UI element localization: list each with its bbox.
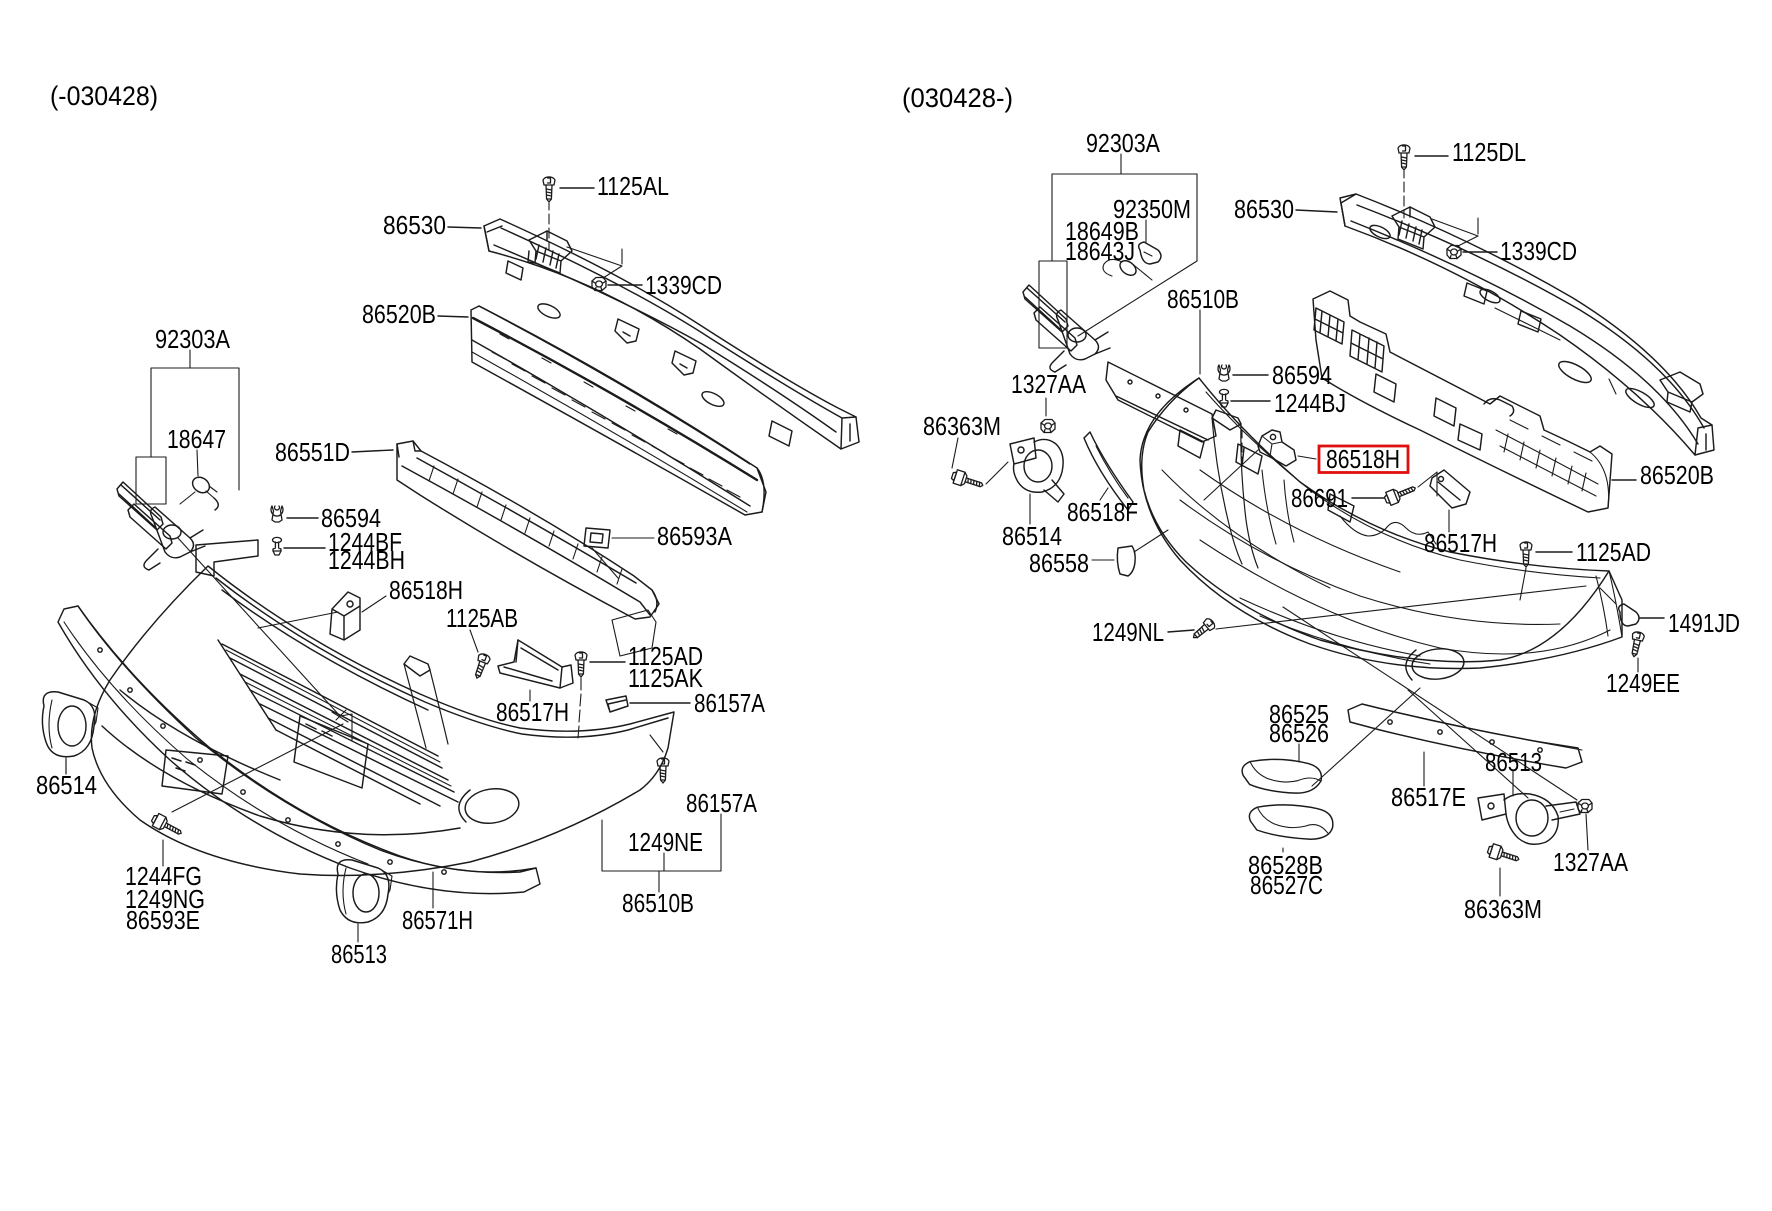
svg-text:1491JD: 1491JD <box>1668 608 1740 638</box>
svg-text:86520B: 86520B <box>362 299 436 329</box>
svg-text:86518H: 86518H <box>389 575 463 605</box>
svg-text:92303A: 92303A <box>155 324 231 354</box>
svg-text:(030428-): (030428-) <box>902 83 1013 113</box>
svg-text:86513: 86513 <box>331 939 387 969</box>
svg-text:1327AA: 1327AA <box>1553 847 1629 877</box>
svg-text:1125AL: 1125AL <box>597 171 669 201</box>
svg-text:1244BJ: 1244BJ <box>1274 388 1346 418</box>
svg-text:18647: 18647 <box>167 424 226 454</box>
svg-text:86514: 86514 <box>36 770 97 800</box>
svg-text:86157A: 86157A <box>686 788 758 818</box>
svg-text:1339CD: 1339CD <box>645 270 722 300</box>
svg-text:1249NL: 1249NL <box>1092 617 1164 647</box>
svg-text:18643J: 18643J <box>1065 236 1135 266</box>
svg-text:1249EE: 1249EE <box>1606 668 1680 698</box>
svg-text:1125AK: 1125AK <box>628 663 704 693</box>
svg-text:86571H: 86571H <box>402 905 473 935</box>
svg-text:1327AA: 1327AA <box>1011 369 1087 399</box>
svg-text:86518H: 86518H <box>1326 444 1400 474</box>
svg-text:86558: 86558 <box>1029 548 1089 578</box>
svg-text:92303A: 92303A <box>1086 128 1161 158</box>
svg-text:1125AD: 1125AD <box>1576 537 1651 567</box>
svg-text:86363M: 86363M <box>923 411 1001 441</box>
svg-text:86518F: 86518F <box>1067 497 1138 527</box>
svg-text:1125AB: 1125AB <box>446 603 518 633</box>
svg-text:86513: 86513 <box>1485 747 1542 777</box>
svg-text:86593A: 86593A <box>657 521 733 551</box>
svg-text:86530: 86530 <box>1234 194 1294 224</box>
svg-text:86517H: 86517H <box>1424 528 1497 558</box>
svg-text:86510B: 86510B <box>1167 284 1239 314</box>
svg-text:1339CD: 1339CD <box>1500 236 1577 266</box>
svg-text:86530: 86530 <box>383 210 446 240</box>
svg-text:86517H: 86517H <box>496 697 569 727</box>
svg-text:86527C: 86527C <box>1250 870 1323 900</box>
svg-text:86526: 86526 <box>1269 718 1329 748</box>
svg-text:1244BH: 1244BH <box>328 545 405 575</box>
svg-text:86514: 86514 <box>1002 521 1062 551</box>
svg-text:1125DL: 1125DL <box>1452 137 1526 167</box>
svg-text:1249NE: 1249NE <box>628 827 703 857</box>
svg-text:86594: 86594 <box>1272 360 1332 390</box>
svg-text:86517E: 86517E <box>1391 782 1466 812</box>
svg-text:86157A: 86157A <box>694 688 766 718</box>
svg-text:86520B: 86520B <box>1640 460 1714 490</box>
svg-text:86593E: 86593E <box>126 905 200 935</box>
svg-text:86510B: 86510B <box>622 888 694 918</box>
svg-text:86363M: 86363M <box>1464 894 1542 924</box>
svg-text:86551D: 86551D <box>275 437 350 467</box>
svg-text:(-030428): (-030428) <box>50 81 158 111</box>
svg-text:86691: 86691 <box>1291 483 1348 513</box>
